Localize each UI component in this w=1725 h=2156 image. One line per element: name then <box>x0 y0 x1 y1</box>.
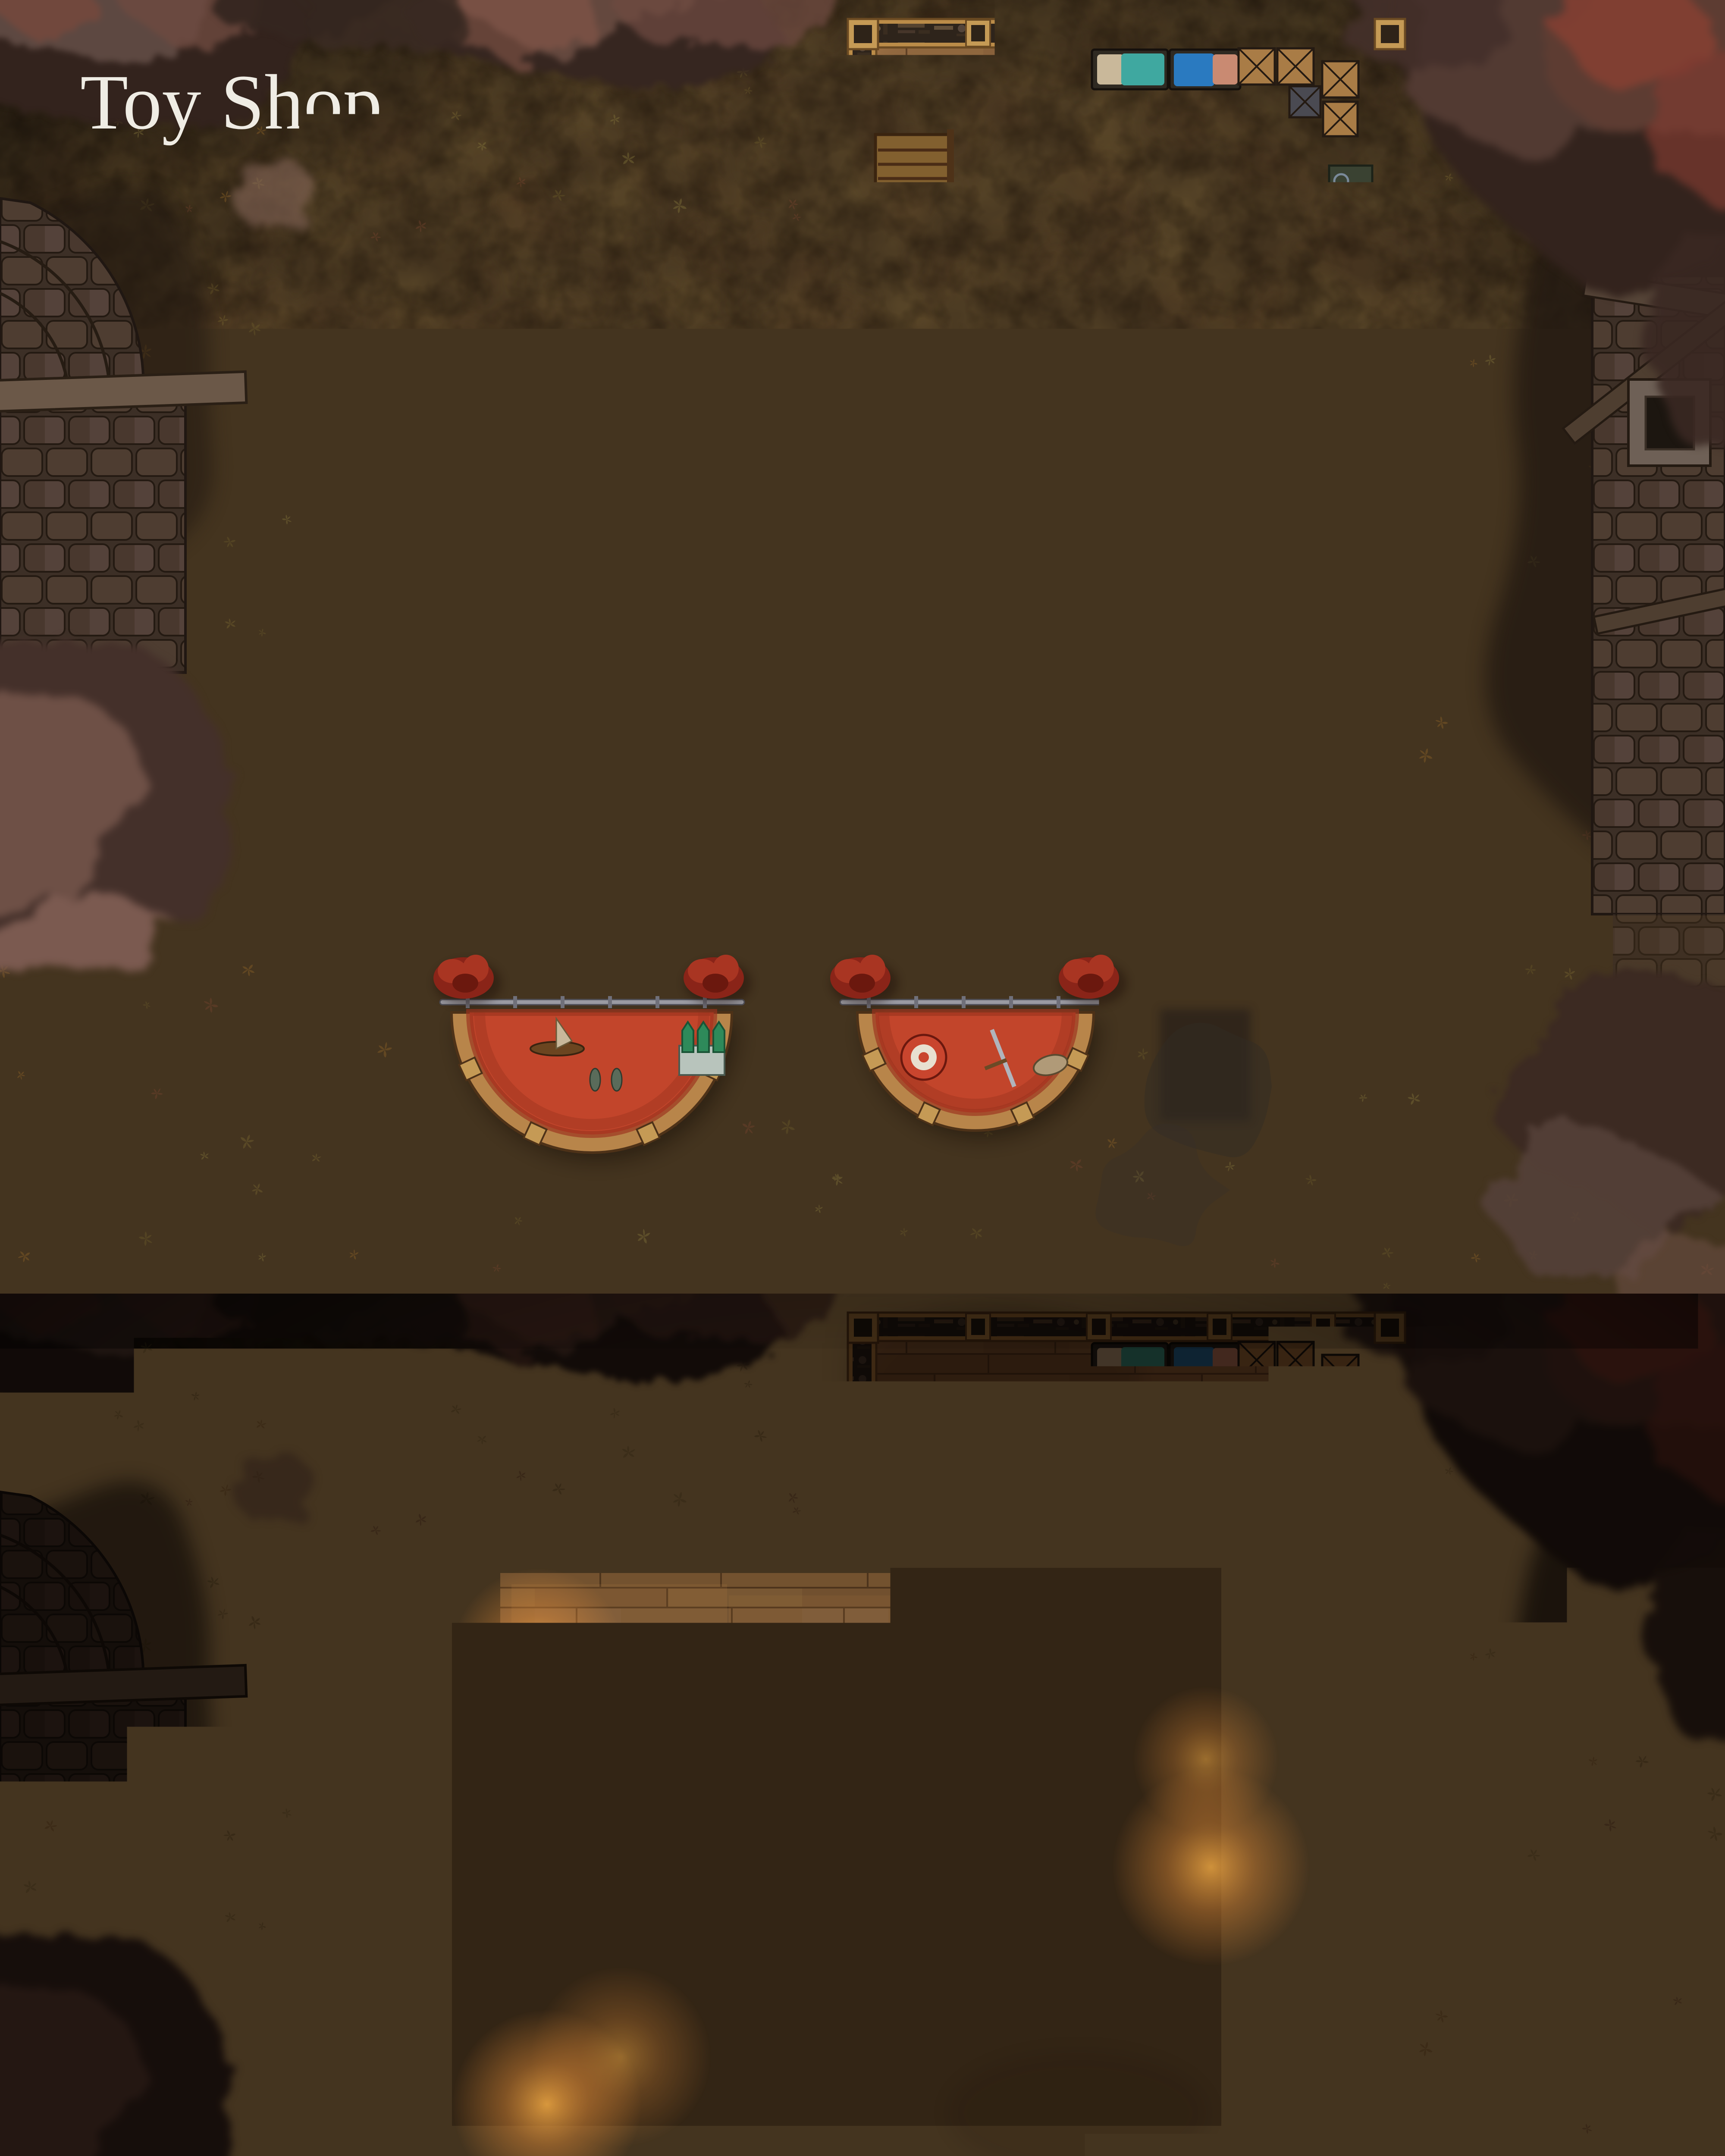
svg-text:Toy Shop: Toy Shop <box>80 59 382 146</box>
svg-text:angelamaps: angelamaps <box>1511 1219 1653 1252</box>
svg-text:Lower Level: Lower Level <box>80 1186 323 1238</box>
svg-text:PATREON: PATREON <box>1487 1166 1687 1201</box>
